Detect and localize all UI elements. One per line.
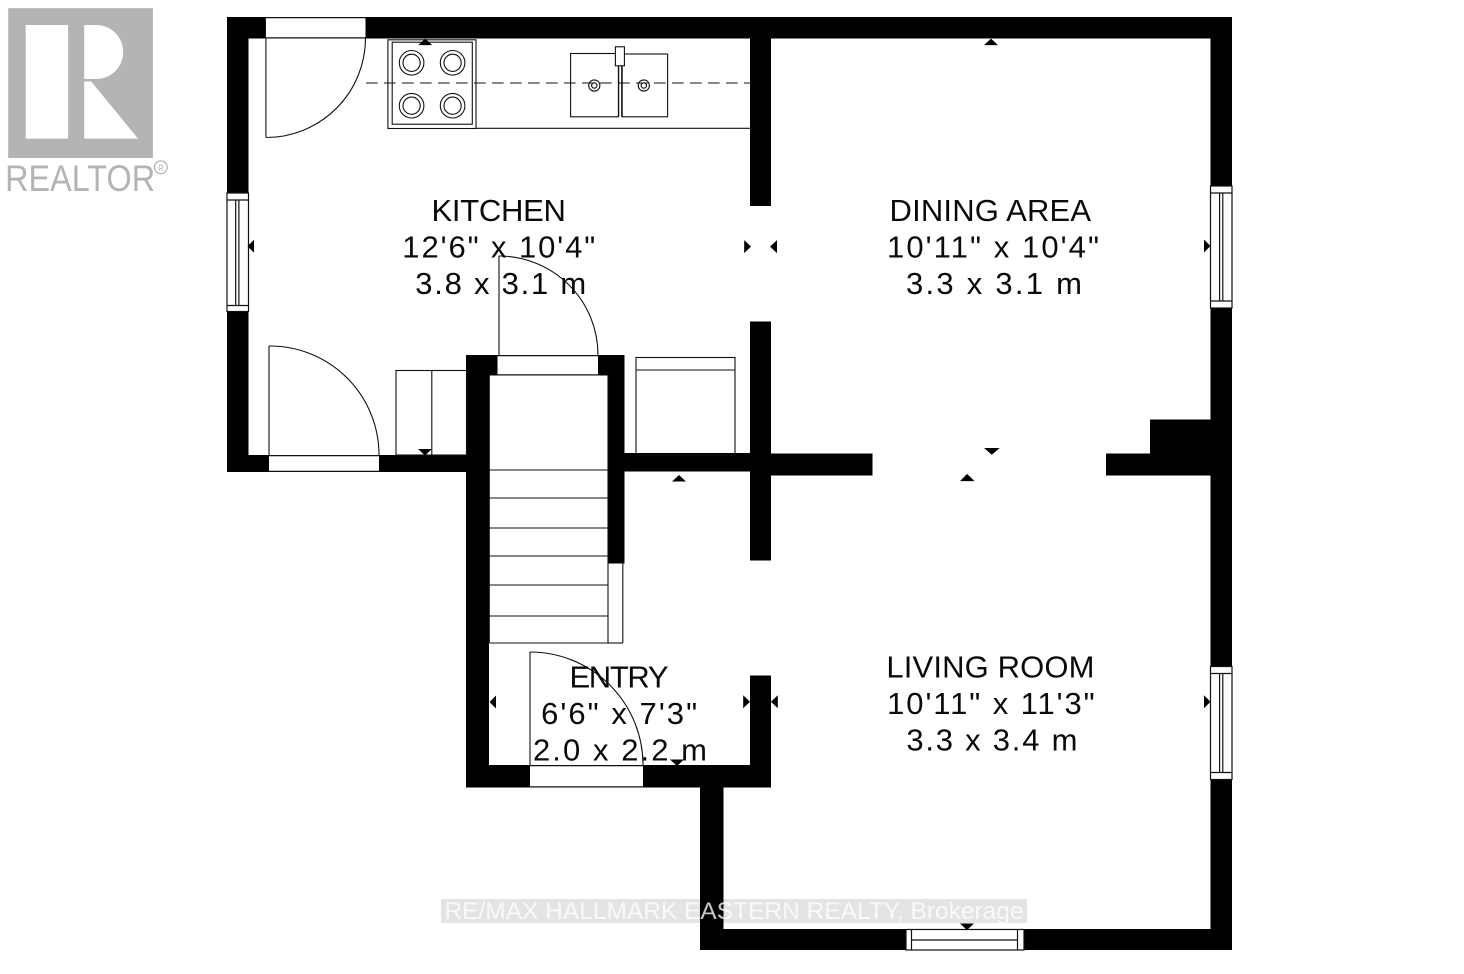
svg-text:3.3 x 3.4 m: 3.3 x 3.4 m [906,723,1077,758]
svg-text:REALTOR: REALTOR [5,158,155,199]
svg-text:6'6" x 7'3": 6'6" x 7'3" [541,696,697,731]
svg-text:KITCHEN: KITCHEN [431,193,566,228]
svg-text:ENTRY: ENTRY [570,660,669,695]
svg-text:RE/MAX HALLMARK EASTERN REALTY: RE/MAX HALLMARK EASTERN REALTY, Brokerag… [444,898,1023,925]
svg-text:R: R [158,164,164,173]
svg-text:DINING AREA: DINING AREA [890,193,1092,228]
svg-text:LIVING ROOM: LIVING ROOM [886,650,1094,685]
svg-text:3.8 x 3.1 m: 3.8 x 3.1 m [415,266,586,301]
svg-text:12'6" x 10'4": 12'6" x 10'4" [402,230,595,265]
